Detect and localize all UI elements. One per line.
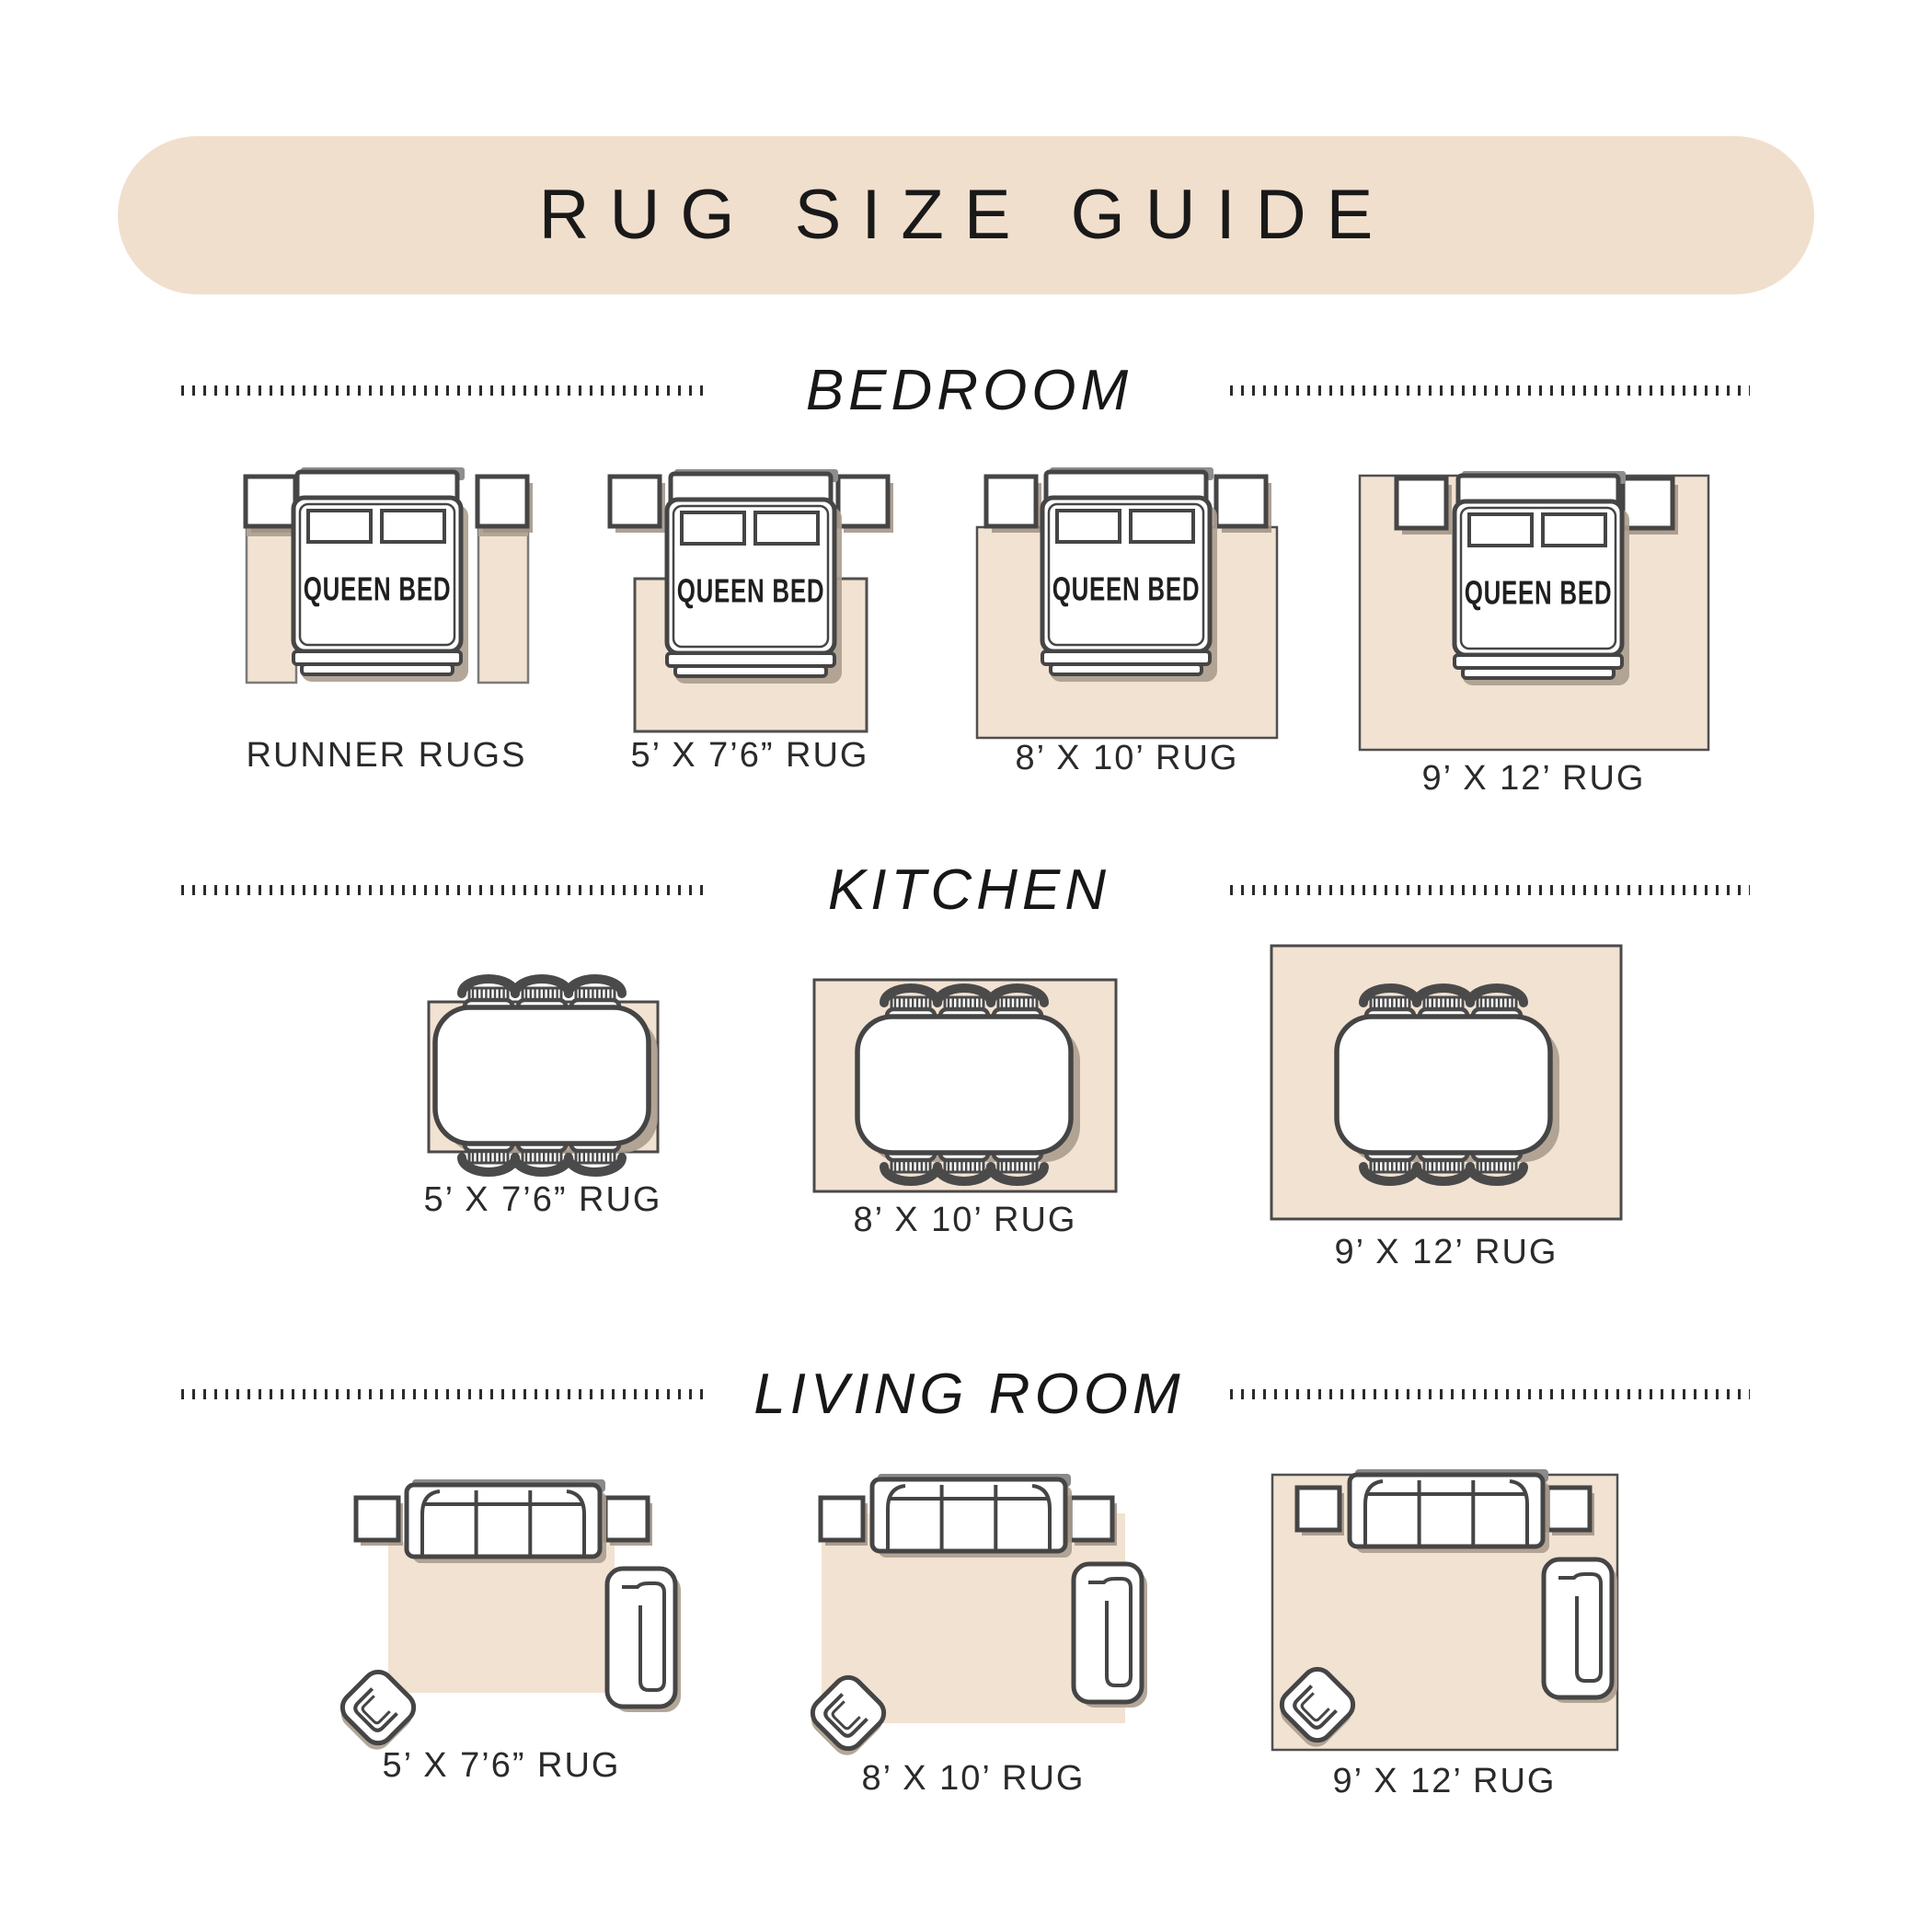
section-title-bedroom: BEDROOM xyxy=(708,361,1230,421)
figure-bedroom-5x7-rug: QUEEN BED xyxy=(593,460,906,745)
nightstand xyxy=(1216,477,1271,533)
figure-kitchen-8x10-rug xyxy=(805,966,1132,1201)
figure-bedroom-9x12-rug: QUEEN BED xyxy=(1351,460,1719,756)
chaise-lounge xyxy=(1074,1564,1147,1708)
rug-size-caption: 5’ X 7’6” RUG xyxy=(383,1746,621,1786)
queen-bed-label: QUEEN BED xyxy=(304,570,452,607)
rug-size-caption: 9’ X 12’ RUG xyxy=(1335,1233,1558,1272)
page-title: RUG SIZE GUIDE xyxy=(118,136,1814,294)
figure-living-8x10-rug xyxy=(800,1467,1155,1776)
dotted-divider-right xyxy=(1230,385,1750,396)
nightstand xyxy=(610,477,665,533)
figure-bedroom-runner-rugs: QUEEN BED xyxy=(230,460,534,699)
queen-bed-label: QUEEN BED xyxy=(1465,574,1613,611)
rug-size-caption: 5’ X 7’6” RUG xyxy=(631,736,869,776)
side-table xyxy=(1547,1488,1594,1535)
chaise-lounge xyxy=(607,1569,681,1712)
rug-size-caption: 5’ X 7’6” RUG xyxy=(424,1180,662,1220)
section-title-kitchen: KITCHEN xyxy=(708,860,1230,921)
dotted-divider-right xyxy=(1230,885,1750,895)
figure-bedroom-8x10-rug: QUEEN BED xyxy=(966,460,1288,747)
dotted-divider-right xyxy=(1230,1389,1750,1399)
side-table xyxy=(1297,1488,1344,1535)
title-banner: RUG SIZE GUIDE xyxy=(118,136,1814,294)
nightstand xyxy=(1623,478,1678,535)
runner-rug-left xyxy=(247,526,296,683)
figure-living-5x7-rug xyxy=(322,1470,690,1774)
side-table xyxy=(356,1498,403,1546)
queen-bed-label: QUEEN BED xyxy=(1052,570,1201,607)
section-title-living-room: LIVING ROOM xyxy=(708,1364,1230,1425)
dotted-divider-left xyxy=(181,385,708,396)
dotted-divider-left xyxy=(181,885,708,895)
nightstand xyxy=(477,477,533,533)
rug-size-guide-poster: RUG SIZE GUIDE BEDROOM QUEEN BED RUNNER … xyxy=(0,0,1932,1932)
dining-table-with-chairs xyxy=(1337,988,1559,1181)
queen-bed-label: QUEEN BED xyxy=(677,572,825,609)
nightstand xyxy=(986,477,1041,533)
dining-table-with-chairs xyxy=(857,988,1080,1181)
chaise-lounge xyxy=(1544,1559,1617,1703)
nightstand xyxy=(1397,478,1452,535)
rug xyxy=(388,1542,615,1693)
figure-kitchen-9x12-rug xyxy=(1262,937,1630,1226)
sofa xyxy=(872,1474,1072,1558)
dotted-divider-left xyxy=(181,1389,708,1399)
rug-size-caption: 9’ X 12’ RUG xyxy=(1422,759,1646,799)
runner-rug-right xyxy=(478,526,528,683)
rug-size-caption: RUNNER RUGS xyxy=(247,736,527,776)
side-table xyxy=(605,1498,652,1546)
dining-table-with-chairs xyxy=(435,979,658,1172)
side-table xyxy=(821,1498,868,1546)
rug-size-caption: 8’ X 10’ RUG xyxy=(854,1201,1077,1240)
rug-size-caption: 8’ X 10’ RUG xyxy=(1016,739,1239,778)
figure-kitchen-5x7-rug xyxy=(405,961,681,1187)
rug-size-caption: 8’ X 10’ RUG xyxy=(862,1759,1086,1799)
sofa xyxy=(1350,1469,1549,1553)
figure-living-9x12-rug xyxy=(1265,1463,1633,1766)
rug-size-caption: 9’ X 12’ RUG xyxy=(1333,1762,1557,1801)
sofa xyxy=(407,1479,606,1563)
nightstand xyxy=(838,477,893,533)
side-table xyxy=(1070,1498,1117,1546)
